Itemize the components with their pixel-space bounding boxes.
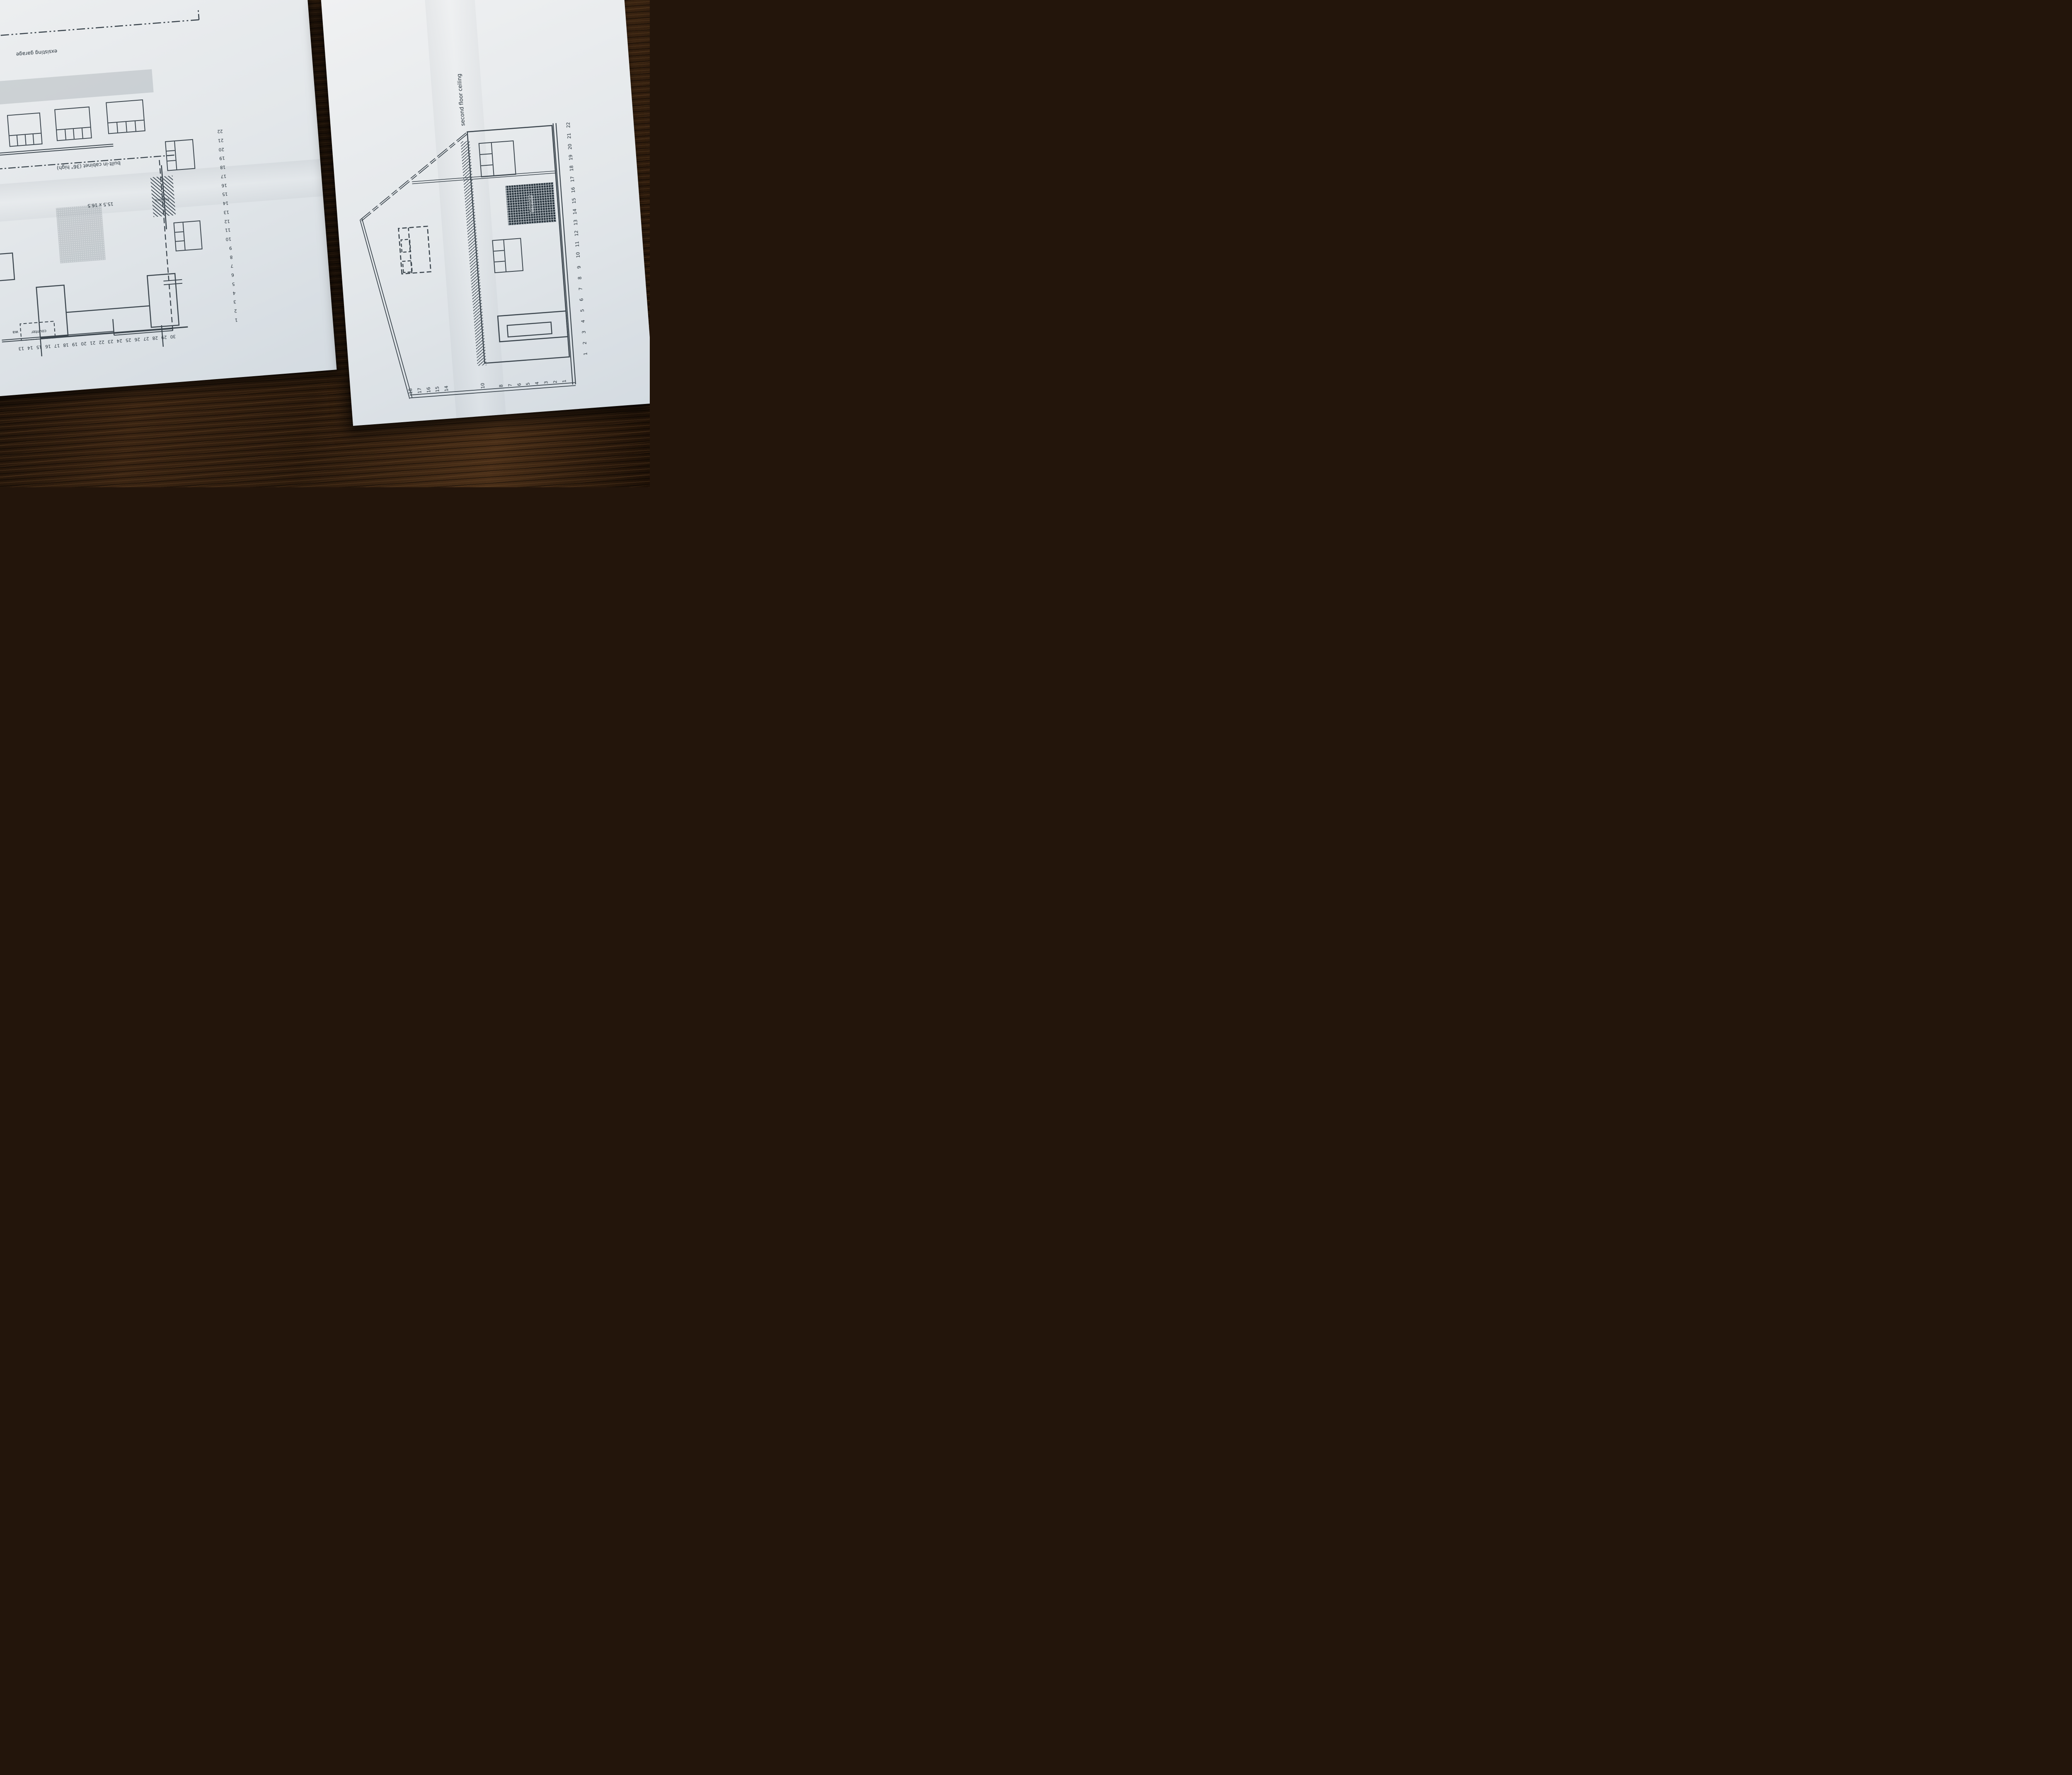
- window-symbol: [7, 112, 43, 147]
- window-pane: [135, 121, 145, 131]
- right-roof-slope: [354, 132, 473, 220]
- scale-number: 16: [570, 187, 576, 193]
- floorplan-sheet: exsisting garage built-in cabinet (36" h…: [0, 0, 337, 399]
- scale-number: 8: [230, 254, 233, 259]
- sofa-seat-line: [66, 306, 150, 312]
- scale-number: 13: [223, 209, 229, 215]
- window-pane-band: [57, 127, 91, 140]
- scale-number: 19: [72, 341, 77, 347]
- scale-number: 3: [233, 299, 237, 304]
- scale-number: 15: [36, 344, 42, 350]
- scale-number: 2: [582, 341, 587, 345]
- scale-number: 9: [576, 266, 582, 269]
- scale-number: 28: [152, 335, 158, 341]
- fireplace-chimney-grid: fireplace: [506, 182, 557, 225]
- scale-number: 17: [220, 174, 226, 179]
- scale-number: 5: [232, 281, 235, 286]
- window-pane: [65, 129, 74, 140]
- window-pane-band: [493, 240, 506, 272]
- wall-break-symbol: [163, 280, 182, 285]
- scale-number: 15: [571, 198, 577, 204]
- scale-number: 14: [444, 385, 450, 392]
- scale-number: 22: [217, 128, 223, 134]
- elevation-sheet: fireplace second floor ceiling 123456789…: [321, 0, 650, 426]
- scale-number: 29: [161, 334, 167, 340]
- scale-number: 16: [221, 182, 227, 188]
- scale-number: 25: [126, 337, 131, 343]
- garage-boundary-line: [0, 20, 199, 37]
- scale-number: 16: [45, 343, 51, 349]
- partial-fixture: [0, 253, 15, 281]
- scale-number: 18: [569, 165, 574, 172]
- scale-number: 6: [579, 298, 584, 301]
- window-symbol: [173, 220, 202, 251]
- window-pane-band: [166, 141, 177, 170]
- elevation-drawing: fireplace second floor ceiling 123456789…: [342, 47, 603, 403]
- scale-number: 23: [107, 339, 113, 344]
- door-panel: [507, 322, 552, 337]
- plan-linework: [0, 10, 241, 359]
- window-pane: [167, 160, 177, 170]
- scale-number: 14: [27, 345, 33, 351]
- scale-number: 15: [435, 386, 441, 392]
- scale-number: 10: [225, 236, 231, 242]
- scale-number: 11: [574, 241, 580, 247]
- scale-number: 4: [580, 319, 586, 323]
- scale-number: 4: [535, 382, 540, 385]
- scale-number: 19: [219, 155, 225, 161]
- scale-number: 19: [568, 155, 574, 161]
- window-pane: [108, 123, 117, 133]
- window-symbol: [54, 106, 92, 141]
- scale-number: 26: [134, 336, 140, 342]
- elevation-fireplace-label: fireplace: [528, 195, 534, 213]
- scale-number: 12: [574, 230, 579, 237]
- window-pane: [25, 134, 34, 145]
- window-pane: [57, 130, 65, 140]
- scale-number: 8: [577, 276, 583, 280]
- window-pane: [174, 222, 184, 232]
- left-roof-slope: [360, 216, 412, 401]
- scale-number: 14: [223, 201, 228, 206]
- scale-number: 6: [516, 383, 522, 386]
- scale-number: 18: [407, 388, 413, 394]
- scale-number: 13: [573, 219, 579, 225]
- scale-number: 22: [566, 122, 571, 128]
- window-symbol: [492, 238, 523, 273]
- window-pane: [126, 121, 136, 132]
- scale-number: 8: [498, 384, 503, 387]
- scale-number: 3: [581, 331, 586, 334]
- scale-number: 17: [54, 343, 60, 348]
- window-pane-band: [174, 222, 186, 251]
- window-pane: [17, 135, 25, 145]
- scale-number: 20: [81, 341, 87, 346]
- scale-number: 24: [116, 338, 122, 343]
- window-pane: [479, 143, 492, 154]
- window-pane: [33, 133, 41, 144]
- scale-number: 12: [224, 218, 230, 224]
- window-pane: [73, 128, 82, 139]
- window-pane: [175, 231, 184, 241]
- window-pane: [166, 141, 175, 151]
- scale-number: 30: [170, 334, 176, 339]
- window-pane: [493, 240, 504, 251]
- scale-number: 20: [567, 143, 573, 150]
- scale-number: 5: [579, 309, 585, 312]
- scale-number: 7: [507, 384, 513, 387]
- scale-number: 11: [225, 227, 230, 233]
- wall-fragment-label: wa: [12, 329, 18, 334]
- window-pane: [176, 240, 185, 250]
- scale-number: 21: [218, 138, 223, 143]
- scale-number: 1: [235, 317, 238, 322]
- photo-scene: exsisting garage built-in cabinet (36" h…: [0, 0, 650, 487]
- scale-number: 22: [99, 339, 104, 345]
- scale-number: 1: [583, 352, 588, 355]
- scale-number: 20: [218, 146, 224, 152]
- scale-number: 18: [63, 342, 69, 348]
- scale-number: 17: [569, 176, 575, 182]
- window-pane: [167, 150, 176, 161]
- scale-number: 1: [562, 380, 567, 383]
- scale-number: 9: [229, 245, 232, 250]
- floorplan-drawing: exsisting garage built-in cabinet (36" h…: [0, 10, 241, 359]
- scale-number: 13: [18, 346, 24, 351]
- scale-number: 7: [230, 263, 234, 268]
- scale-number: 6: [231, 272, 235, 277]
- window-pane: [481, 164, 494, 177]
- fireplace-hatch: [150, 176, 176, 217]
- scale-number: 7: [578, 287, 583, 290]
- window-pane: [10, 135, 17, 146]
- window-pane: [480, 153, 493, 165]
- window-symbol: [106, 99, 145, 134]
- scale-number: 5: [525, 382, 531, 385]
- scale-number: 14: [572, 208, 578, 215]
- floor-line: [553, 123, 576, 385]
- sofa-arm: [147, 273, 179, 327]
- window-pane: [116, 122, 126, 133]
- window-symbol: [479, 140, 516, 177]
- scale-number: 2: [234, 308, 237, 313]
- scale-number: 21: [566, 133, 572, 139]
- scale-number: 10: [575, 252, 581, 258]
- window-pane: [494, 261, 506, 272]
- scale-number: 10: [480, 383, 486, 389]
- scale-number: 2: [552, 380, 558, 384]
- window-pane-band: [479, 143, 494, 177]
- scale-number: 16: [426, 387, 431, 393]
- scale-number: 15: [222, 191, 228, 197]
- scale-number: 21: [90, 340, 95, 346]
- scale-number: 27: [143, 336, 149, 341]
- window-pane-band: [108, 120, 145, 133]
- window-pane: [494, 250, 505, 261]
- scale-number: 4: [232, 290, 236, 295]
- scale-number: 18: [220, 164, 225, 170]
- window-pane-band: [10, 133, 42, 146]
- window-pane: [82, 128, 91, 138]
- scale-number: 17: [416, 387, 422, 394]
- rug-shading: [56, 205, 106, 264]
- window-symbol: [165, 139, 195, 171]
- scale-number: 3: [543, 381, 549, 384]
